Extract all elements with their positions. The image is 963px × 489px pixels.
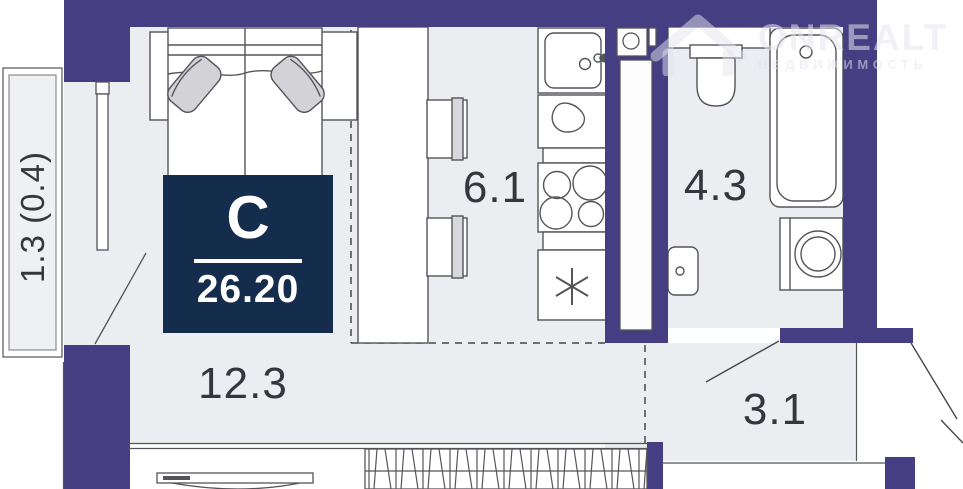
- counter-segment: [543, 232, 607, 250]
- stove-icon: [538, 163, 607, 232]
- wall-top: [130, 0, 877, 27]
- floor-plan-drawing: [0, 0, 963, 489]
- wall-bottom-left: [64, 345, 130, 489]
- tv-icon: [157, 473, 313, 489]
- bathroom-area-label: 4.3: [684, 161, 748, 211]
- fridge-icon: [538, 250, 607, 320]
- vent-shaft: [617, 28, 656, 330]
- kitchen-area-label: 6.1: [463, 163, 527, 213]
- bar-stool-icon: [427, 98, 467, 160]
- wall-bathroom-bottom: [780, 328, 913, 343]
- neighbor-door-swing: [941, 420, 963, 443]
- unit-total-area: 26.20: [163, 268, 333, 312]
- floor-plan: 1.3 (0.4) 12.3 6.1 4.3 3.1 С 26.20 ONREA…: [0, 0, 963, 489]
- washing-machine-icon: [780, 218, 843, 290]
- wall-right: [843, 27, 877, 330]
- kitchen-cabinet-icon: [538, 95, 607, 148]
- bathtub-icon: [770, 28, 843, 207]
- wall-top-left: [64, 0, 130, 82]
- badge-divider: [194, 259, 302, 263]
- entrance-door-swing: [911, 343, 957, 419]
- kitchen-appliances: [538, 28, 612, 320]
- kitchen-sink-icon: [538, 28, 612, 93]
- bar-stool-icon: [427, 216, 467, 278]
- wardrobe-icon: [365, 449, 647, 489]
- hallway-area-label: 3.1: [743, 385, 807, 435]
- living-room-area-label: 12.3: [198, 359, 288, 409]
- unit-type-label: С: [163, 181, 333, 255]
- bathroom-sink-icon: [668, 247, 698, 295]
- unit-badge: С 26.20: [163, 175, 333, 333]
- balcony-area-label: 1.3 (0.4): [14, 151, 52, 283]
- counter-segment: [543, 148, 607, 163]
- wall-jamb-right: [885, 457, 915, 489]
- wall-jamb-left: [647, 442, 663, 489]
